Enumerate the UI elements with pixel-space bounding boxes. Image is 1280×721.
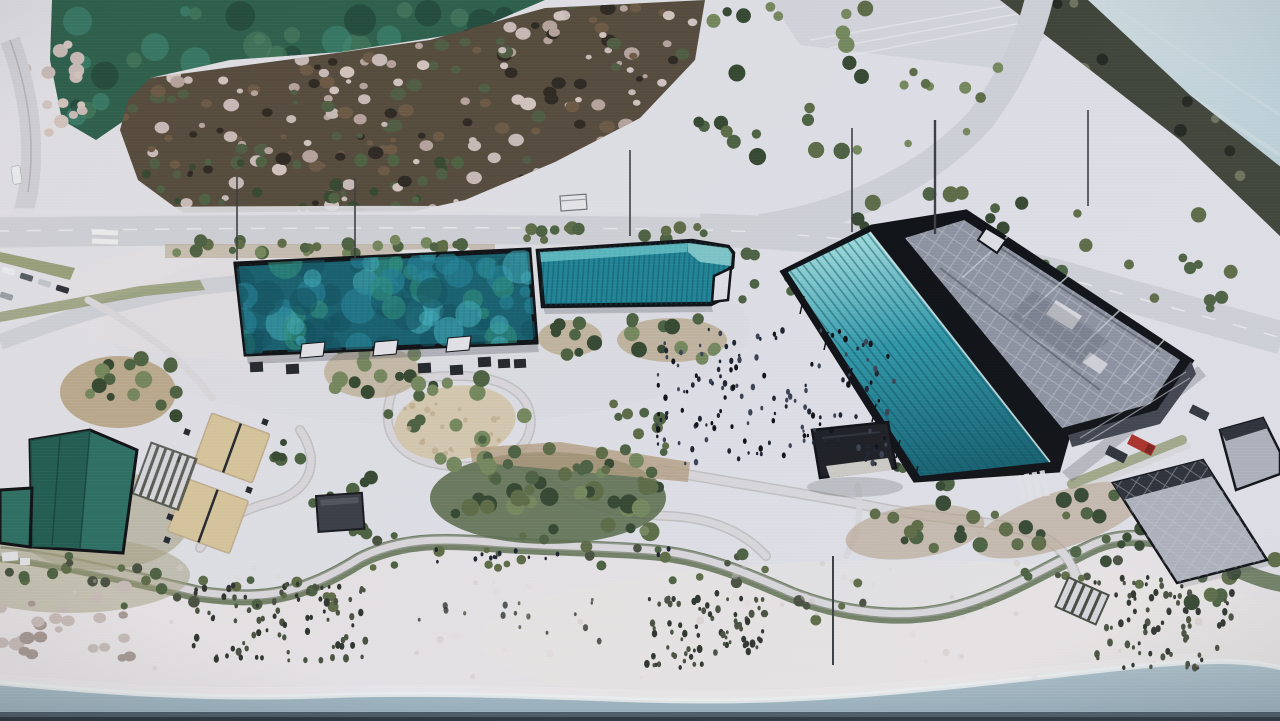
play-oval-texture-item <box>430 411 435 416</box>
plaza-crowd-item <box>785 398 788 403</box>
plaza-crowd-item <box>683 390 685 394</box>
marsh-texture-item <box>505 68 518 78</box>
grove-item <box>921 79 931 89</box>
tree-cluster-item <box>413 390 425 402</box>
marsh-texture-item <box>554 11 566 21</box>
grove-item <box>842 56 856 70</box>
tree-cluster-item <box>738 295 746 303</box>
play-oval-texture-item <box>440 425 445 430</box>
beach-grass-item <box>746 648 751 655</box>
beach-grass-item <box>255 655 259 660</box>
roadside-trees-item <box>865 195 881 211</box>
beach-grass-item <box>1138 651 1141 655</box>
grove-item <box>959 82 971 94</box>
beach-grass-item <box>443 602 448 609</box>
marsh-texture-item <box>398 104 413 116</box>
marsh-texture-item <box>463 118 473 126</box>
marsh-texture-item <box>488 153 501 164</box>
tree-cluster-item <box>349 376 361 388</box>
grove-item <box>749 148 766 165</box>
marsh-texture-item <box>531 128 540 135</box>
shore-rocks-item <box>19 632 34 644</box>
dune-shrubs-item <box>517 555 527 565</box>
dock-box <box>2 551 19 561</box>
grove-item <box>808 142 824 158</box>
sand-grain-item <box>526 583 532 589</box>
shore-rocks-item <box>92 594 103 603</box>
tree-cluster-item <box>107 393 115 401</box>
plaza-crowd-item <box>719 360 722 364</box>
beach-grass-item <box>1228 613 1233 621</box>
shore-rocks-item <box>34 632 48 643</box>
beach-grass-item <box>273 613 277 619</box>
entry-opening <box>446 336 471 352</box>
marsh-texture-item <box>620 5 628 12</box>
pond-texture-item <box>91 62 119 90</box>
rain-garden-trees-item <box>973 537 988 552</box>
play-oval-texture-item <box>419 440 425 446</box>
grove-item <box>838 37 854 53</box>
grove-item <box>727 135 741 149</box>
sand-grain-item <box>437 636 444 643</box>
path-people-item <box>667 546 671 552</box>
street-trees-item <box>255 247 267 259</box>
street-trees-item <box>342 237 355 250</box>
dune-shrubs-item <box>247 576 255 584</box>
marsh-texture-item <box>460 97 470 105</box>
beach-grass-item <box>574 612 577 616</box>
plaza-crowd-item <box>845 352 848 356</box>
plaza-crowd-item <box>819 415 822 419</box>
grove-item <box>993 62 1004 73</box>
marsh-texture-item <box>312 200 319 206</box>
plaza-crowd-item <box>735 384 738 388</box>
crosswalk <box>92 239 118 245</box>
beach-grass-item <box>1132 581 1135 586</box>
tree-cluster-item <box>601 518 616 533</box>
marsh-texture-item <box>415 43 423 49</box>
plaza-crowd-item <box>867 445 870 449</box>
beach-grass-item <box>761 597 765 602</box>
beach-grass-item <box>1143 624 1147 630</box>
plaza-crowd-item <box>699 344 701 348</box>
tree-cluster-item <box>490 474 501 485</box>
beach-grass-item <box>1138 641 1141 645</box>
plaza-crowd-item <box>698 416 702 422</box>
marsh-texture-item <box>595 22 609 33</box>
beach-grass-item <box>666 645 669 650</box>
beach-grass-item <box>1118 619 1124 627</box>
beach-grass-item <box>261 616 265 622</box>
beach-grass-item <box>1187 589 1192 597</box>
marsh-texture-item <box>409 80 422 90</box>
marsh-texture-item <box>224 131 238 142</box>
dune-shrubs-item <box>504 561 511 568</box>
marsh-texture-item <box>418 133 426 139</box>
grove-item <box>736 8 751 23</box>
sand-grain-item <box>503 648 507 652</box>
rain-garden-trees-item <box>966 510 980 524</box>
beach-grass-item <box>686 646 690 652</box>
beach-grass-item <box>332 645 335 649</box>
beach-grass-item <box>351 623 354 627</box>
marsh-texture-item <box>342 179 355 190</box>
beach-grass-item <box>503 602 508 609</box>
play-oval-texture-item <box>451 449 454 452</box>
tree-cluster-item <box>543 442 556 455</box>
plaza-crowd-item <box>737 456 741 461</box>
shore-rocks-item <box>59 606 68 613</box>
beach-grass-item <box>657 661 661 667</box>
dune-shrubs-item <box>810 615 821 626</box>
tree-cluster-item <box>601 465 610 474</box>
pond-texture-item <box>284 27 300 43</box>
tree-cluster-item <box>750 279 760 289</box>
beach-grass-item <box>705 602 710 609</box>
pond-texture-item <box>450 9 468 27</box>
plaza-crowd-item <box>759 337 762 341</box>
street-trees-item <box>452 241 460 249</box>
beach-grass-item <box>192 643 196 649</box>
plaza-crowd-item <box>671 358 675 364</box>
marsh-texture-item <box>223 99 239 112</box>
beach-grass-item <box>1196 608 1201 615</box>
plaza-crowd-item <box>839 412 843 418</box>
marsh-texture-item <box>318 163 326 169</box>
plaza-crowd-item <box>665 415 668 420</box>
marsh-texture-item <box>275 153 291 165</box>
marsh-texture-item <box>358 94 370 104</box>
marsh-texture-item <box>272 164 287 176</box>
beach-grass-item <box>297 597 300 602</box>
beach-grass-item <box>283 622 288 628</box>
marsh-texture-item <box>235 144 248 154</box>
plaza-crowd-item <box>837 437 840 441</box>
tree-cluster-item <box>503 459 513 469</box>
plaza-crowd-item <box>838 329 841 334</box>
sand-grain-item <box>780 602 785 607</box>
roadside-trees-item <box>943 186 959 202</box>
tree-cluster-item <box>632 499 650 517</box>
marsh-texture-item <box>237 137 243 142</box>
beach-grass-item <box>242 641 245 645</box>
beach-grass-item <box>333 598 338 605</box>
marsh-edge-bushes-item <box>330 178 343 191</box>
beach-grass-item <box>671 652 675 658</box>
band-texture-item <box>1174 124 1187 137</box>
dune-shrubs-item <box>1078 575 1085 582</box>
plaza-crowd-item <box>794 399 797 403</box>
dune-shrubs-item <box>1135 580 1144 589</box>
tree-cluster-item <box>624 326 640 342</box>
small-hut <box>560 194 587 211</box>
marsh-texture-item <box>531 22 540 29</box>
beach-grass-item <box>256 629 261 636</box>
beach-grass-item <box>1217 622 1222 629</box>
play-oval-texture-item <box>476 445 481 450</box>
marsh-texture-item <box>354 114 367 124</box>
site-plan-rendering <box>0 0 1280 721</box>
play-oval-texture-item <box>443 451 448 456</box>
rain-garden-trees-item <box>887 512 899 524</box>
plaza-crowd-item <box>819 422 822 426</box>
street-trees-item <box>525 223 537 235</box>
beach-grass-item <box>1185 634 1189 640</box>
street-trees-item <box>277 239 286 248</box>
beach-grass-item <box>518 601 521 605</box>
beach-grass-item <box>1173 595 1176 599</box>
dune-shrubs-item <box>1012 538 1023 549</box>
pond-rocks-item <box>63 41 72 49</box>
beach-grass-item <box>337 584 341 590</box>
marsh-edge-bushes-item <box>157 185 165 193</box>
marsh-edge-bushes-item <box>417 176 427 186</box>
tree-cluster-item <box>517 408 532 423</box>
street-trees-item <box>172 248 181 257</box>
beach-grass-item <box>698 607 701 611</box>
beach-grass-item <box>1148 651 1152 657</box>
beach-grass-item <box>1159 577 1163 583</box>
beach-grass-item <box>1146 575 1150 580</box>
tree-cluster-item <box>280 439 287 446</box>
beach-grass-item <box>349 613 354 620</box>
marsh-texture-item <box>167 96 176 103</box>
beach-grass-item <box>1229 589 1235 597</box>
beach-grass-item <box>285 582 289 587</box>
beach-grass-item <box>591 601 593 604</box>
street-trees-item <box>430 242 439 251</box>
beach-grass-item <box>234 618 238 623</box>
tree-cluster-item <box>170 386 183 399</box>
beach-grass-item <box>359 589 362 594</box>
street-trees-item <box>638 229 651 242</box>
tree-cluster-item <box>709 343 721 355</box>
picnic-gazebo <box>807 422 903 497</box>
dune-shrubs-item <box>669 576 677 584</box>
roadside-trees-item <box>990 203 1000 213</box>
plaza-crowd-item <box>656 435 658 439</box>
sand-grain-item <box>70 565 74 569</box>
beach-grass-item <box>667 596 671 602</box>
plaza-crowd-item <box>788 393 792 400</box>
beach-grass-item <box>306 589 311 595</box>
beach-grass-item <box>697 633 701 638</box>
sand-grain-item <box>1195 618 1203 626</box>
marsh-texture-item <box>385 108 397 118</box>
grove-item <box>693 117 704 128</box>
play-oval-texture-item <box>424 407 430 413</box>
tree-cluster-item <box>446 457 462 473</box>
sand-grain-item <box>1118 649 1122 653</box>
roadside-trees-item <box>1179 254 1188 263</box>
plaza-crowd-item <box>870 380 873 384</box>
dune-shrubs-item <box>5 568 14 577</box>
tree-cluster-item <box>548 524 558 534</box>
beach-grass-item <box>1178 593 1182 599</box>
plaza-crowd-item <box>759 445 763 452</box>
beach-grass-item <box>211 616 215 622</box>
dune-shrubs-item <box>539 534 549 544</box>
dune-shrubs-item <box>132 563 142 573</box>
beach-grass-item <box>693 649 696 653</box>
shore-rocks-item <box>93 613 106 623</box>
marsh-texture-item <box>164 135 172 142</box>
beach-grass-item <box>679 665 682 670</box>
sand-grain-item <box>169 620 173 624</box>
beach-grass-item <box>646 661 650 666</box>
roadside-trees-item <box>1124 260 1134 270</box>
beach-grass-item <box>418 618 421 622</box>
tree-cluster-item <box>646 467 657 478</box>
marsh-edge-bushes-item <box>328 193 339 204</box>
pond-rocks-item <box>69 111 78 119</box>
beach-grass-item <box>1114 592 1118 597</box>
marsh-texture-item <box>393 79 403 87</box>
plaza-crowd-item <box>724 344 728 350</box>
marsh-edge-bushes-item <box>237 159 245 167</box>
marsh-edge-bushes-item <box>256 156 267 167</box>
marsh-texture-item <box>332 132 343 141</box>
shore-rocks-item <box>61 615 74 626</box>
marsh-texture-item <box>657 79 667 87</box>
tree-cluster-item <box>524 485 534 495</box>
beach-grass-item <box>336 610 340 616</box>
play-oval-texture-item <box>406 426 411 431</box>
plaza-crowd-item <box>709 379 713 385</box>
grove-item <box>841 9 851 19</box>
beach-grass-item <box>697 645 703 653</box>
plaza-crowd-item <box>780 327 785 334</box>
plaza-crowd-item <box>760 452 763 456</box>
beach-grass-item <box>1127 600 1132 606</box>
sand-grain-item <box>733 592 738 597</box>
beach-grass-item <box>234 603 238 608</box>
marsh-texture-item <box>341 197 347 202</box>
rain-garden-trees-item <box>936 495 952 511</box>
play-oval-texture-item <box>497 416 501 420</box>
shore-rocks-item <box>28 601 36 607</box>
plaza-crowd-item <box>737 357 741 364</box>
beach-grass-item <box>328 585 331 589</box>
plaza-crowd-item <box>684 462 686 466</box>
rain-garden-trees-item <box>1019 520 1033 534</box>
beach-grass-item <box>1149 594 1154 601</box>
marsh-edge-bushes-item <box>412 196 419 203</box>
marsh-edge-bushes-item <box>252 187 262 197</box>
tree-cluster-item <box>577 466 586 475</box>
plaza-crowd-item <box>801 425 804 430</box>
plaza-crowd-item <box>772 418 776 423</box>
path-people-item <box>474 556 478 561</box>
beach-grass-item <box>287 650 290 655</box>
dune-shrubs-item <box>188 596 200 608</box>
tree-cluster-item <box>608 496 621 509</box>
marsh-texture-item <box>466 172 482 185</box>
marsh-edge-bushes-item <box>149 158 160 169</box>
pond-rocks-item <box>74 72 82 79</box>
marsh-texture-item <box>237 89 243 94</box>
pond-rocks-item <box>58 98 69 108</box>
rain-garden-trees-item <box>1056 492 1072 508</box>
sand-grain-item <box>578 619 584 625</box>
sand-grain-item <box>949 595 954 600</box>
marsh-texture-item <box>335 153 345 161</box>
band-texture-item <box>1182 96 1193 107</box>
play-oval-texture-item <box>491 446 498 453</box>
plaza-crowd-item <box>729 367 733 372</box>
tree-cluster-item <box>469 385 485 401</box>
sand-grain-item <box>960 654 964 658</box>
sand-grain-item <box>943 649 950 656</box>
marsh-texture-item <box>591 99 605 110</box>
beach-grass-item <box>708 611 712 617</box>
plaza-crowd-item <box>705 437 709 442</box>
marsh-texture-item <box>611 63 621 71</box>
plaza-crowd-item <box>657 442 659 446</box>
dune-shrubs-item <box>1024 572 1033 581</box>
dune-shrubs-item <box>761 610 768 617</box>
sand-grain-item <box>470 674 475 679</box>
beach-grass-item <box>276 607 281 614</box>
tree-island <box>60 356 176 428</box>
pond-texture-item <box>397 2 413 18</box>
plaza-crowd-item <box>723 380 728 387</box>
tree-cluster-item <box>1204 588 1218 602</box>
street-trees-item <box>674 221 687 234</box>
plaza-crowd-item <box>846 381 851 388</box>
beach-grass-item <box>583 624 588 631</box>
marsh-texture-item <box>629 53 637 59</box>
tree-cluster-item <box>620 444 631 455</box>
shore-rocks-item <box>49 613 62 624</box>
plaza-crowd-item <box>785 404 788 408</box>
beach-grass-item <box>682 630 687 638</box>
beach-grass-item <box>1163 591 1169 599</box>
photo-bottom-edge <box>0 717 1280 721</box>
roof-ribs <box>236 250 536 354</box>
dune-shrubs-item <box>173 593 181 601</box>
beach-grass-item <box>1200 658 1203 663</box>
tree-cluster-item <box>374 369 388 383</box>
pond-rocks-item <box>42 100 52 109</box>
marsh-texture-item <box>155 122 170 134</box>
beach-grass-item <box>678 622 682 628</box>
tree-cluster-item <box>451 509 461 519</box>
marsh-texture-item <box>381 122 387 127</box>
plaza-crowd-item <box>865 386 869 392</box>
marsh-edge-bushes-item <box>174 198 181 205</box>
beach-grass-item <box>1222 608 1227 616</box>
beach-grass-item <box>754 597 758 602</box>
tree-cluster-item <box>478 435 486 443</box>
marsh-texture-item <box>417 60 429 70</box>
tree-cluster-item <box>135 371 152 388</box>
plaza-crowd-item <box>810 362 813 367</box>
plaza-crowd-item <box>677 387 680 391</box>
marsh-edge-bushes-item <box>340 190 346 196</box>
dune-shrubs-item <box>1070 546 1081 557</box>
marsh-texture-item <box>522 156 531 164</box>
beach-grass-item <box>303 657 307 663</box>
beach-grass-item <box>1165 648 1170 655</box>
sand-grain-item <box>801 593 809 601</box>
beach-grass-item <box>305 628 310 635</box>
plaza-crowd-item <box>740 394 744 400</box>
band-texture-item <box>1235 171 1246 182</box>
beach-grass-item <box>701 607 706 614</box>
beach-grass-item <box>360 655 363 660</box>
path-people-item <box>498 551 502 556</box>
